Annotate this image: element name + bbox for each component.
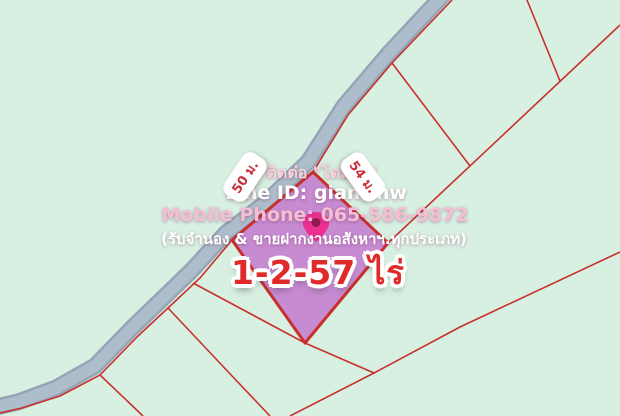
land-plot-map: ติดต่อ "โดมจ๋า" Line ID: giantmw Mobile … [0, 0, 620, 416]
map-canvas [0, 0, 620, 416]
